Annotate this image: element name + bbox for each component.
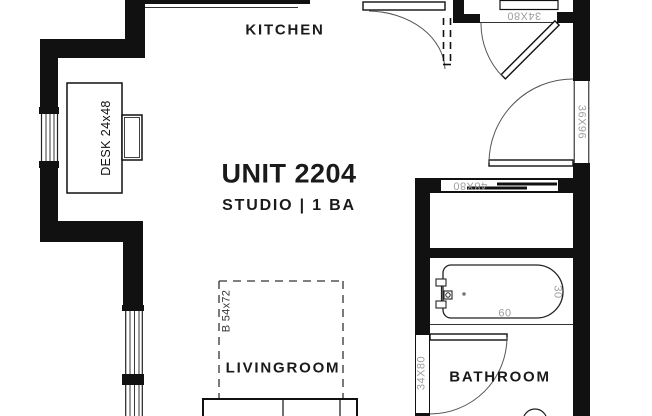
livingroom-room-label: LIVINGROOM [226,361,341,376]
desk-nook-window [42,114,58,161]
kitchen-interior-door [363,2,451,69]
desk-chair [122,115,142,160]
closet-door-size-label: 48X80 [453,180,487,191]
right-opening-size-label: 36X96 [576,105,587,139]
right-opening-door [489,79,573,166]
kitchen-room-label: KITCHEN [245,23,324,38]
bathroom-door-size-label: 34X80 [417,356,428,390]
bed-size-label: B 54x72 [222,290,233,332]
floor-plan: KITCHEN UNIT 2204 STUDIO | 1 BA LIVINGRO… [0,0,652,416]
unit-subtitle: STUDIO | 1 BA [222,198,356,214]
livingroom-windows [126,311,143,416]
sofa [203,399,357,416]
toilet [523,409,547,416]
bathroom-room-label: BATHROOM [449,370,551,385]
tub-drain [462,292,466,296]
entry-door [481,21,559,79]
bed-outline [219,281,343,416]
unit-title: UNIT 2204 [221,161,356,188]
desk-size-label: DESK 24x48 [100,100,113,176]
tub-length-label: 60 [498,309,511,320]
tub-width-label: 30 [552,285,563,298]
entry-cabinet [500,1,558,10]
desk [67,83,122,193]
entry-door-size-label: 34X80 [507,10,541,21]
